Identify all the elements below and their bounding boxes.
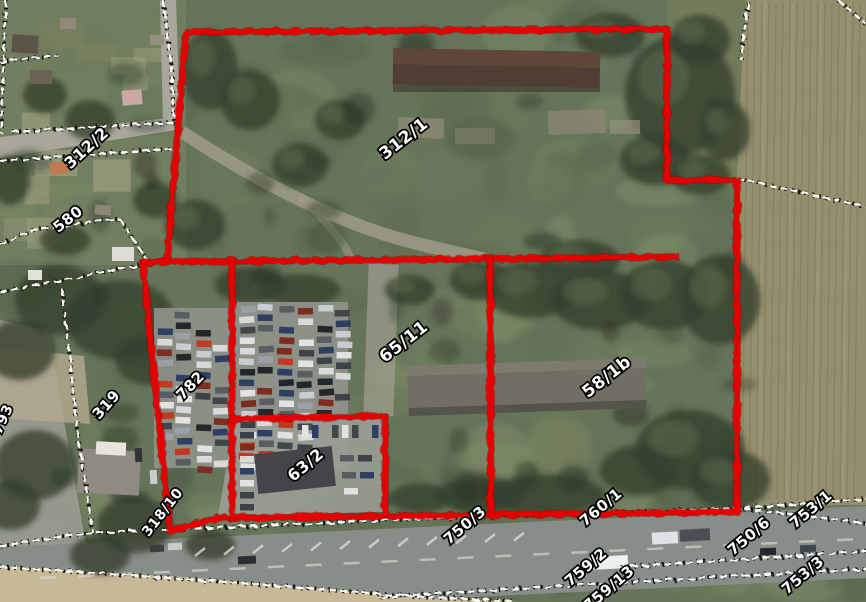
- vehicle: [800, 545, 816, 553]
- tree-highlight: [173, 206, 200, 229]
- parked-car: [196, 340, 211, 347]
- tree: [92, 284, 109, 305]
- parked-car: [337, 341, 352, 348]
- vehicle: [168, 543, 182, 551]
- garden-shed: [95, 204, 112, 215]
- parked-car: [279, 306, 294, 313]
- parked-car: [258, 325, 273, 332]
- parked-car: [277, 432, 292, 439]
- tree: [108, 63, 145, 86]
- parked-car: [332, 425, 339, 438]
- ruin: [610, 120, 640, 134]
- tree: [263, 207, 276, 226]
- parked-car: [175, 333, 190, 340]
- tree: [553, 493, 591, 504]
- parked-car: [335, 373, 350, 380]
- tree-highlight: [690, 266, 726, 307]
- vehicle: [680, 528, 711, 542]
- grass-blob: [280, 35, 369, 66]
- parked-car: [196, 351, 211, 358]
- parked-car: [352, 425, 359, 438]
- parked-car: [258, 314, 273, 321]
- parked-car: [258, 356, 273, 363]
- parked-car: [317, 357, 332, 364]
- tree: [578, 142, 616, 170]
- parked-car: [241, 306, 256, 313]
- tree: [308, 221, 346, 254]
- parked-car: [240, 456, 254, 463]
- garden-plot: [93, 159, 130, 191]
- parked-car: [158, 328, 173, 335]
- tree: [133, 150, 157, 179]
- house-roof: [11, 34, 38, 54]
- vehicle: [652, 531, 679, 544]
- parked-car: [239, 316, 254, 324]
- parked-car: [214, 460, 229, 467]
- parked-car: [174, 312, 189, 319]
- tree-highlight: [678, 160, 705, 178]
- parked-car: [240, 327, 255, 334]
- parked-car: [259, 398, 274, 405]
- parked-car: [197, 456, 212, 463]
- parked-car: [158, 360, 173, 367]
- tree-highlight: [496, 269, 537, 294]
- parked-car: [319, 368, 334, 375]
- parked-car: [318, 378, 333, 385]
- parked-car: [257, 304, 272, 311]
- parked-car: [358, 455, 372, 462]
- parked-car: [197, 445, 212, 453]
- tree-highlight: [629, 141, 661, 164]
- garden-shed: [112, 247, 134, 261]
- parked-car: [215, 387, 230, 394]
- parked-car: [213, 345, 228, 352]
- parked-car: [298, 360, 313, 367]
- parked-car: [157, 381, 172, 388]
- tree-highlight: [391, 279, 414, 293]
- tree-highlight: [279, 149, 304, 169]
- parked-car: [279, 337, 294, 344]
- parked-car: [319, 389, 334, 396]
- tree-highlight: [189, 40, 214, 76]
- tree: [523, 233, 561, 250]
- garden-shed: [150, 35, 164, 45]
- tree-highlight: [706, 108, 729, 135]
- parked-car: [240, 492, 254, 499]
- ruin: [455, 128, 495, 144]
- parked-car: [317, 326, 332, 333]
- parked-car: [176, 343, 191, 350]
- grass-blob: [483, 157, 509, 203]
- parked-car: [318, 399, 333, 406]
- parked-car: [157, 339, 172, 346]
- parked-car: [337, 352, 352, 359]
- tree: [441, 470, 474, 488]
- grass-blob: [525, 167, 549, 186]
- parked-car: [215, 355, 230, 362]
- parked-car: [298, 318, 313, 325]
- parked-car: [196, 361, 211, 368]
- parked-car: [259, 440, 274, 447]
- parked-car: [335, 394, 350, 401]
- tree: [399, 466, 424, 487]
- parked-car: [335, 310, 350, 317]
- parked-car: [319, 347, 334, 354]
- parked-car: [336, 362, 351, 369]
- parked-car: [176, 459, 191, 466]
- tree: [40, 296, 57, 324]
- parked-car: [240, 390, 255, 397]
- ruin: [548, 109, 607, 135]
- tree-cluster: [390, 483, 450, 513]
- parked-car: [213, 408, 228, 415]
- parked-car: [175, 427, 190, 434]
- tree-highlight: [631, 269, 672, 301]
- parked-car: [257, 388, 272, 395]
- parked-car: [240, 504, 254, 511]
- parked-car: [299, 339, 314, 346]
- parked-car: [279, 390, 294, 397]
- aerial-map-view[interactable]: 312/2580312/165/1158/1b31978263/2318/107…: [0, 0, 866, 602]
- parked-car: [277, 442, 292, 449]
- tree: [660, 316, 685, 344]
- parked-car: [279, 327, 294, 334]
- parked-car: [176, 322, 191, 329]
- tree-cluster: [70, 535, 130, 575]
- garden-shed: [28, 270, 42, 280]
- map-canvas[interactable]: 312/2580312/165/1158/1b31978263/2318/107…: [0, 0, 866, 602]
- parked-car: [360, 472, 374, 479]
- tree: [50, 468, 79, 487]
- tree-highlight: [649, 420, 699, 456]
- tree: [389, 293, 402, 322]
- parked-car: [157, 349, 172, 356]
- tree: [431, 298, 452, 325]
- grass-blob: [697, 345, 720, 370]
- parked-car: [240, 468, 254, 475]
- parked-car: [297, 381, 312, 388]
- tree-highlight: [228, 78, 255, 105]
- parked-car: [175, 448, 190, 455]
- tree: [515, 461, 539, 490]
- parked-car: [241, 400, 256, 407]
- parked-car: [177, 438, 192, 445]
- parked-car: [336, 331, 351, 338]
- parked-car: [239, 358, 254, 365]
- tree: [246, 172, 275, 194]
- parked-car: [240, 480, 254, 487]
- parked-car: [259, 346, 274, 353]
- parked-car: [318, 305, 333, 312]
- parked-car: [342, 472, 356, 479]
- tree: [342, 92, 376, 125]
- grass-blob: [361, 166, 420, 212]
- parked-car: [340, 455, 354, 462]
- parked-car: [279, 379, 294, 386]
- parked-car: [159, 391, 174, 398]
- tree-highlight: [678, 21, 705, 44]
- parked-car: [302, 425, 309, 438]
- parked-car: [195, 393, 210, 400]
- parked-car: [215, 439, 230, 446]
- parked-car: [176, 406, 191, 413]
- vehicle: [238, 556, 256, 565]
- parked-car: [176, 354, 191, 361]
- house-wall: [96, 441, 127, 456]
- tree: [303, 153, 333, 169]
- parked-car: [342, 425, 349, 438]
- tree: [516, 93, 544, 109]
- parked-car: [239, 379, 254, 386]
- vehicle: [150, 470, 158, 484]
- parked-car: [277, 369, 292, 376]
- red-boundary-line: [490, 258, 491, 512]
- parked-car: [213, 429, 228, 436]
- parked-car: [196, 424, 211, 431]
- parked-car: [240, 369, 255, 376]
- garden-shed: [121, 89, 142, 106]
- parked-car: [298, 308, 313, 315]
- parked-car: [240, 348, 255, 355]
- garden-shed: [60, 18, 76, 29]
- tree-cluster: [185, 530, 235, 560]
- tree: [542, 263, 577, 282]
- parked-car: [212, 397, 227, 404]
- parked-car: [278, 358, 293, 366]
- tree: [239, 66, 260, 78]
- grass-blob: [530, 326, 563, 366]
- parked-car: [214, 418, 229, 425]
- parked-car: [277, 348, 292, 355]
- tree: [250, 265, 282, 285]
- parked-car: [299, 350, 314, 357]
- tree-highlight: [700, 458, 736, 485]
- tree: [89, 200, 110, 233]
- tree-highlight: [458, 265, 485, 283]
- parked-car: [175, 417, 190, 424]
- parked-car: [197, 466, 212, 474]
- vehicle: [135, 448, 143, 462]
- tree: [449, 427, 469, 453]
- tree: [429, 340, 461, 363]
- parked-car: [240, 432, 254, 439]
- parked-car: [279, 400, 294, 407]
- parked-car: [317, 336, 332, 343]
- parked-car: [240, 337, 255, 344]
- parked-car: [258, 367, 273, 374]
- grass-blob: [528, 416, 592, 475]
- tree-highlight: [563, 278, 608, 305]
- parked-car: [299, 392, 314, 399]
- parked-car: [257, 430, 272, 437]
- tree: [306, 200, 342, 219]
- house-roof: [30, 70, 52, 84]
- parked-car: [297, 371, 312, 378]
- tree: [601, 320, 620, 342]
- parked-car: [312, 425, 319, 438]
- vehicle: [760, 548, 776, 556]
- parked-car: [344, 488, 358, 495]
- parked-car: [278, 421, 293, 428]
- vehicle: [150, 545, 164, 553]
- parked-car: [196, 330, 211, 337]
- parked-car: [336, 320, 351, 327]
- parked-car: [240, 444, 254, 451]
- parked-car: [298, 402, 313, 409]
- parked-car: [372, 425, 379, 438]
- tree: [557, 465, 589, 492]
- tree-highlight: [321, 105, 344, 123]
